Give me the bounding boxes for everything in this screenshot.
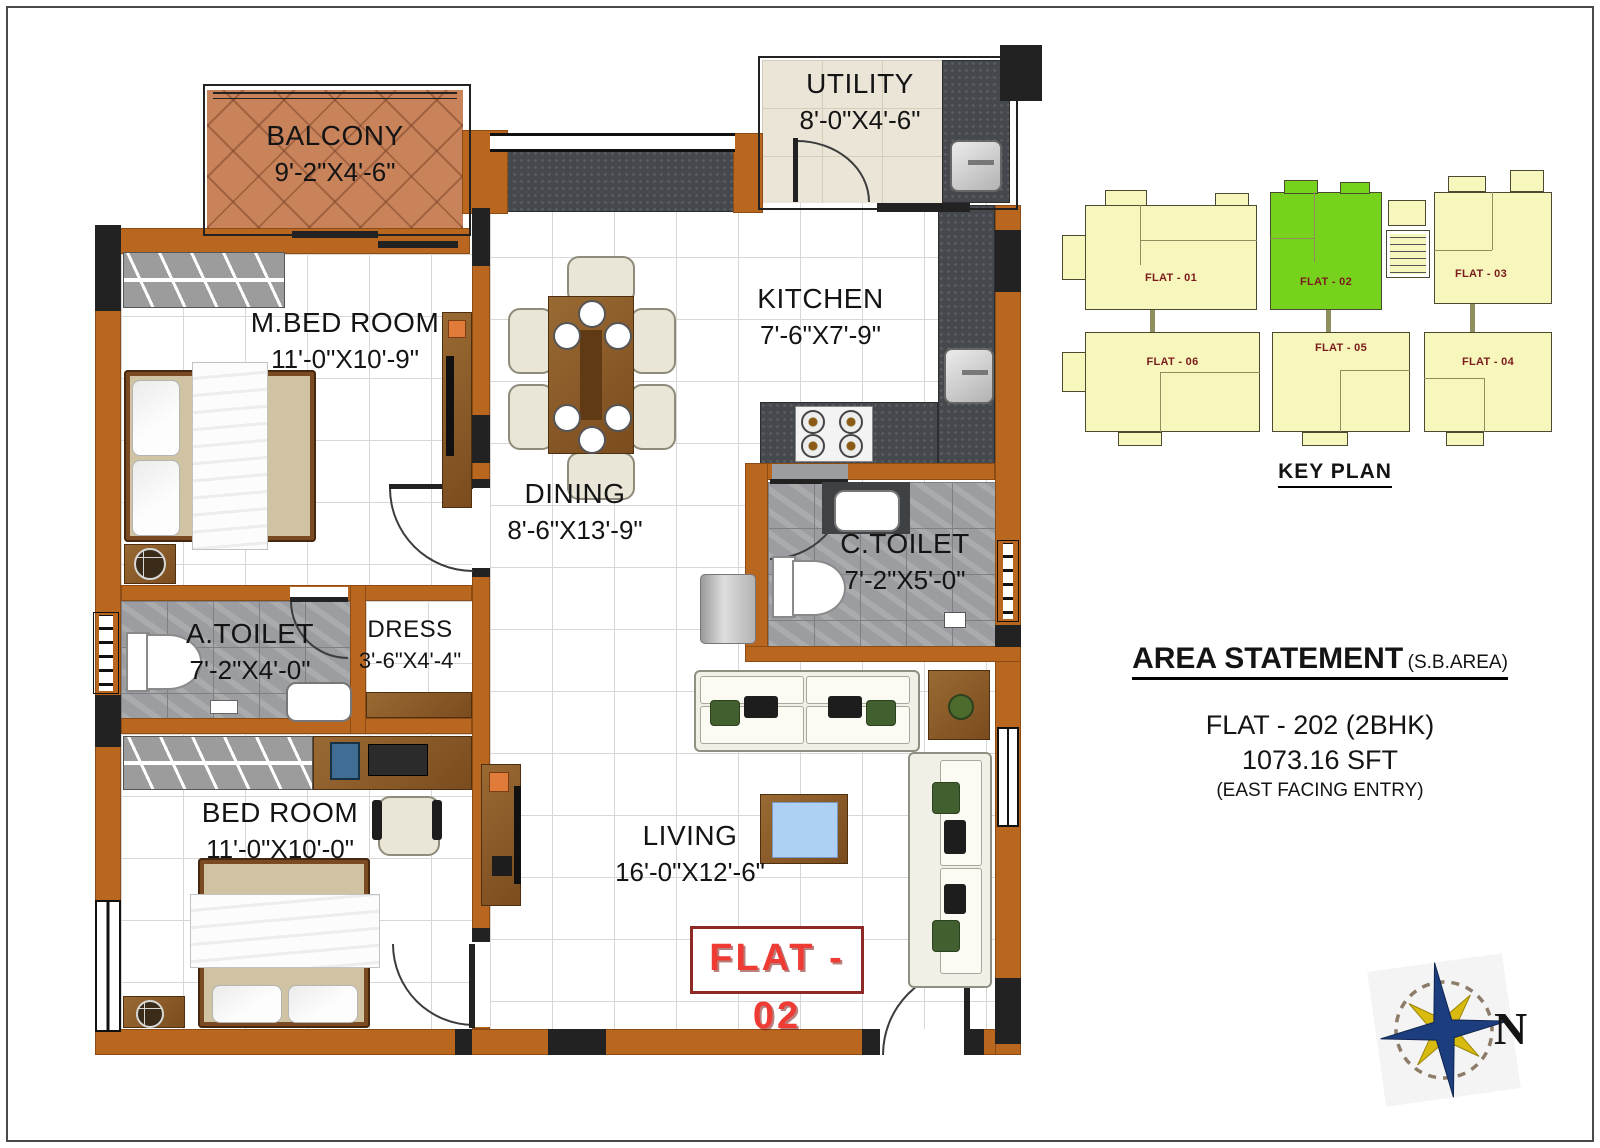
keyplan-wall-line	[1434, 250, 1492, 251]
room-dims: 11'-0"X10'-9"	[195, 342, 495, 376]
burner	[801, 434, 825, 458]
throw-pillow	[944, 884, 966, 914]
throw-pillow	[744, 696, 778, 718]
keyplan-wall-line	[1140, 240, 1257, 241]
keyplan-flat-05-label: FLAT - 05	[1272, 342, 1410, 354]
room-name: UTILITY	[775, 66, 945, 103]
bedroom-door-leaf	[469, 944, 475, 1028]
keyplan-flat-05-wing	[1302, 432, 1348, 446]
pillow	[132, 380, 180, 456]
table-runner	[580, 330, 602, 420]
keyplan-wall-line	[1160, 372, 1161, 432]
column	[472, 208, 490, 266]
column	[472, 415, 490, 463]
keyplan-connector	[1470, 304, 1475, 332]
room-dims: 9'-2"X4'-6"	[225, 155, 445, 189]
keyplan-flat-01-wing	[1105, 190, 1147, 206]
living-window	[997, 727, 1019, 827]
flat-number-badge: FLAT - 02	[690, 926, 864, 994]
dining-top-counter	[490, 150, 745, 212]
floor-plan-sheet: BALCONY 9'-2"X4'-6" M.BED ROOM 11'-0"X10…	[0, 0, 1600, 1148]
column	[95, 695, 121, 747]
keyplan-wall-line	[1340, 370, 1410, 371]
plate	[553, 404, 581, 432]
column	[95, 225, 121, 311]
table-lamp	[136, 1000, 164, 1028]
table-lamp	[134, 548, 166, 580]
mbed-blanket	[192, 362, 268, 550]
column	[548, 1029, 606, 1055]
plant	[948, 694, 974, 720]
keyplan-flat-04-label: FLAT - 04	[1424, 356, 1552, 368]
desk-chair	[378, 796, 440, 856]
door-jamb	[968, 1029, 984, 1055]
room-dims: 8'-6"X13'-9"	[465, 513, 685, 547]
room-dims: 11'-0"X10'-0"	[175, 832, 385, 866]
pillow	[212, 985, 282, 1023]
room-name: DRESS	[352, 614, 468, 646]
keyplan-flat-06	[1085, 332, 1260, 432]
room-dims: 7'-2"X4'-0"	[150, 653, 350, 687]
door-jamb	[472, 568, 490, 577]
keyplan-flat-01-label: FLAT - 01	[1085, 272, 1257, 284]
area-statement-flat: FLAT - 202 (2BHK)	[1110, 710, 1530, 741]
keyplan-flat-04-wing	[1446, 432, 1484, 446]
dress-cabinet	[366, 692, 472, 718]
wall-ctoilet-bottom	[745, 646, 1021, 662]
dining-chair	[630, 308, 676, 374]
throw-pillow	[866, 700, 896, 726]
keyplan-flat-06-wing	[1062, 352, 1086, 392]
kitchen-right-counter	[938, 205, 995, 465]
keyplan-wall-line	[1492, 192, 1493, 250]
keyplan-title-text: KEY PLAN	[1278, 460, 1392, 488]
room-dims: 8'-0"X4'-6"	[775, 103, 945, 137]
burner	[839, 410, 863, 434]
room-label-living: LIVING 16'-0"X12'-6"	[580, 818, 800, 889]
compass-north-label: N	[1494, 1002, 1544, 1055]
decor	[489, 772, 509, 792]
decor	[492, 856, 512, 876]
utility-sink	[950, 140, 1002, 192]
room-name: BED ROOM	[175, 795, 385, 832]
area-statement-heading: AREA STATEMENT (S.B.AREA)	[1110, 642, 1530, 676]
keyplan-wall-line	[1140, 205, 1141, 265]
room-dims: 16'-0"X12'-6"	[580, 855, 800, 889]
plate	[553, 322, 581, 350]
keyplan-flat-02-wing	[1284, 180, 1318, 194]
plate	[604, 322, 632, 350]
throw-pillow	[944, 820, 966, 854]
throw-pillow	[828, 696, 862, 718]
balcony-slider-bar-2	[378, 241, 458, 248]
keyplan-flat-06-wing	[1118, 432, 1162, 446]
burner	[801, 410, 825, 434]
atoilet-window	[93, 612, 119, 694]
door-jamb	[862, 1029, 880, 1055]
column	[995, 625, 1021, 647]
tv	[514, 786, 521, 884]
bedroom-window	[95, 900, 121, 1032]
room-name: M.BED ROOM	[195, 305, 495, 342]
keyplan-flat-03-wing	[1448, 176, 1486, 192]
door-jamb	[472, 928, 490, 942]
keyplan-flat-01-wing	[1215, 193, 1249, 206]
kitchen-sink	[944, 348, 994, 404]
faucet	[968, 160, 994, 165]
room-name: LIVING	[580, 818, 800, 855]
column	[1000, 45, 1042, 101]
keyplan-wall-line	[1424, 378, 1484, 379]
keyplan-flat-03	[1434, 192, 1552, 304]
column	[995, 230, 1021, 292]
book	[330, 742, 360, 780]
utility-door-leaf	[793, 138, 798, 202]
laptop	[368, 744, 428, 776]
bedroom-blanket	[190, 894, 380, 968]
room-label-ctoilet: C.TOILET 7'-2"X5'-0"	[790, 526, 1020, 597]
keyplan-wall-line	[1484, 378, 1485, 432]
area-statement-suffix: (S.B.AREA)	[1408, 652, 1508, 673]
keyplan-title: KEY PLAN	[1235, 460, 1435, 484]
room-name: C.TOILET	[790, 526, 1020, 563]
plate	[578, 300, 606, 328]
mbed-wardrobe	[123, 252, 285, 308]
atoilet-basin	[286, 682, 352, 722]
room-name: KITCHEN	[733, 281, 908, 318]
keyplan-connector	[1326, 310, 1331, 332]
room-label-utility: UTILITY 8'-0"X4'-6"	[775, 66, 945, 137]
area-statement-title: AREA STATEMENT	[1132, 642, 1403, 675]
room-label-mbedroom: M.BED ROOM 11'-0"X10'-9"	[195, 305, 495, 376]
keyplan-flat-01-wing	[1062, 235, 1086, 280]
room-dims: 7'-2"X5'-0"	[790, 563, 1020, 597]
room-label-bedroom: BED ROOM 11'-0"X10'-0"	[175, 795, 385, 866]
keyplan-wall-line	[1270, 238, 1314, 239]
keyplan-wall-line	[1340, 370, 1341, 432]
plate	[604, 404, 632, 432]
keyplan-flat-02-highlighted	[1270, 192, 1382, 310]
room-label-dress: DRESS 3'-6"X4'-4"	[352, 614, 468, 675]
room-name: A.TOILET	[150, 616, 350, 653]
pillow	[132, 460, 180, 536]
room-label-kitchen: KITCHEN 7'-6"X7'-9"	[733, 281, 908, 352]
keyplan-flat-04	[1424, 332, 1552, 432]
balcony-railing	[213, 92, 457, 99]
burner	[839, 434, 863, 458]
keyplan-flat-03-label: FLAT - 03	[1420, 268, 1542, 280]
floor-drain	[944, 612, 966, 628]
room-label-balcony: BALCONY 9'-2"X4'-6"	[225, 118, 445, 189]
room-dims: 7'-6"X7'-9"	[733, 318, 908, 352]
kitchen-top-window	[877, 203, 970, 212]
keyplan-connector	[1150, 310, 1155, 332]
keyplan-wall-line	[1314, 192, 1315, 262]
chair-arm	[432, 800, 442, 840]
dining-top-window	[490, 133, 735, 152]
keyplan-wall-line	[1160, 372, 1260, 373]
throw-pillow	[932, 782, 960, 814]
plate	[578, 426, 606, 454]
ctoilet-door-opening	[772, 464, 848, 480]
atoilet-door-leaf	[290, 597, 348, 602]
washing-machine	[700, 574, 756, 644]
keyplan-flat-02-wing	[1340, 182, 1370, 194]
throw-pillow	[932, 920, 960, 952]
column	[995, 978, 1021, 1044]
room-dims: 3'-6"X4'-4"	[352, 646, 468, 675]
room-label-dining: DINING 8'-6"X13'-9"	[465, 476, 685, 547]
area-statement-area: 1073.16 SFT	[1110, 745, 1530, 776]
room-name: DINING	[465, 476, 685, 513]
area-statement: AREA STATEMENT (S.B.AREA) FLAT - 202 (2B…	[1110, 642, 1530, 802]
keyplan-flat-03-wing	[1510, 170, 1544, 192]
bedroom-wardrobe	[123, 736, 313, 790]
room-label-atoilet: A.TOILET 7'-2"X4'-0"	[150, 616, 350, 687]
throw-pillow	[710, 700, 740, 726]
keyplan-flat-02-label: FLAT - 02	[1270, 276, 1382, 288]
keyplan-flat-06-label: FLAT - 06	[1085, 356, 1260, 368]
keyplan-flat-01	[1085, 205, 1257, 310]
faucet	[962, 370, 988, 375]
keyplan-lobby	[1388, 200, 1426, 226]
accessory	[210, 700, 238, 714]
pillow	[288, 985, 358, 1023]
room-name: BALCONY	[225, 118, 445, 155]
area-statement-facing: (EAST FACING ENTRY)	[1110, 780, 1530, 802]
dining-chair	[630, 384, 676, 450]
balcony-slider-bar-1	[292, 231, 378, 238]
column	[455, 1029, 472, 1055]
